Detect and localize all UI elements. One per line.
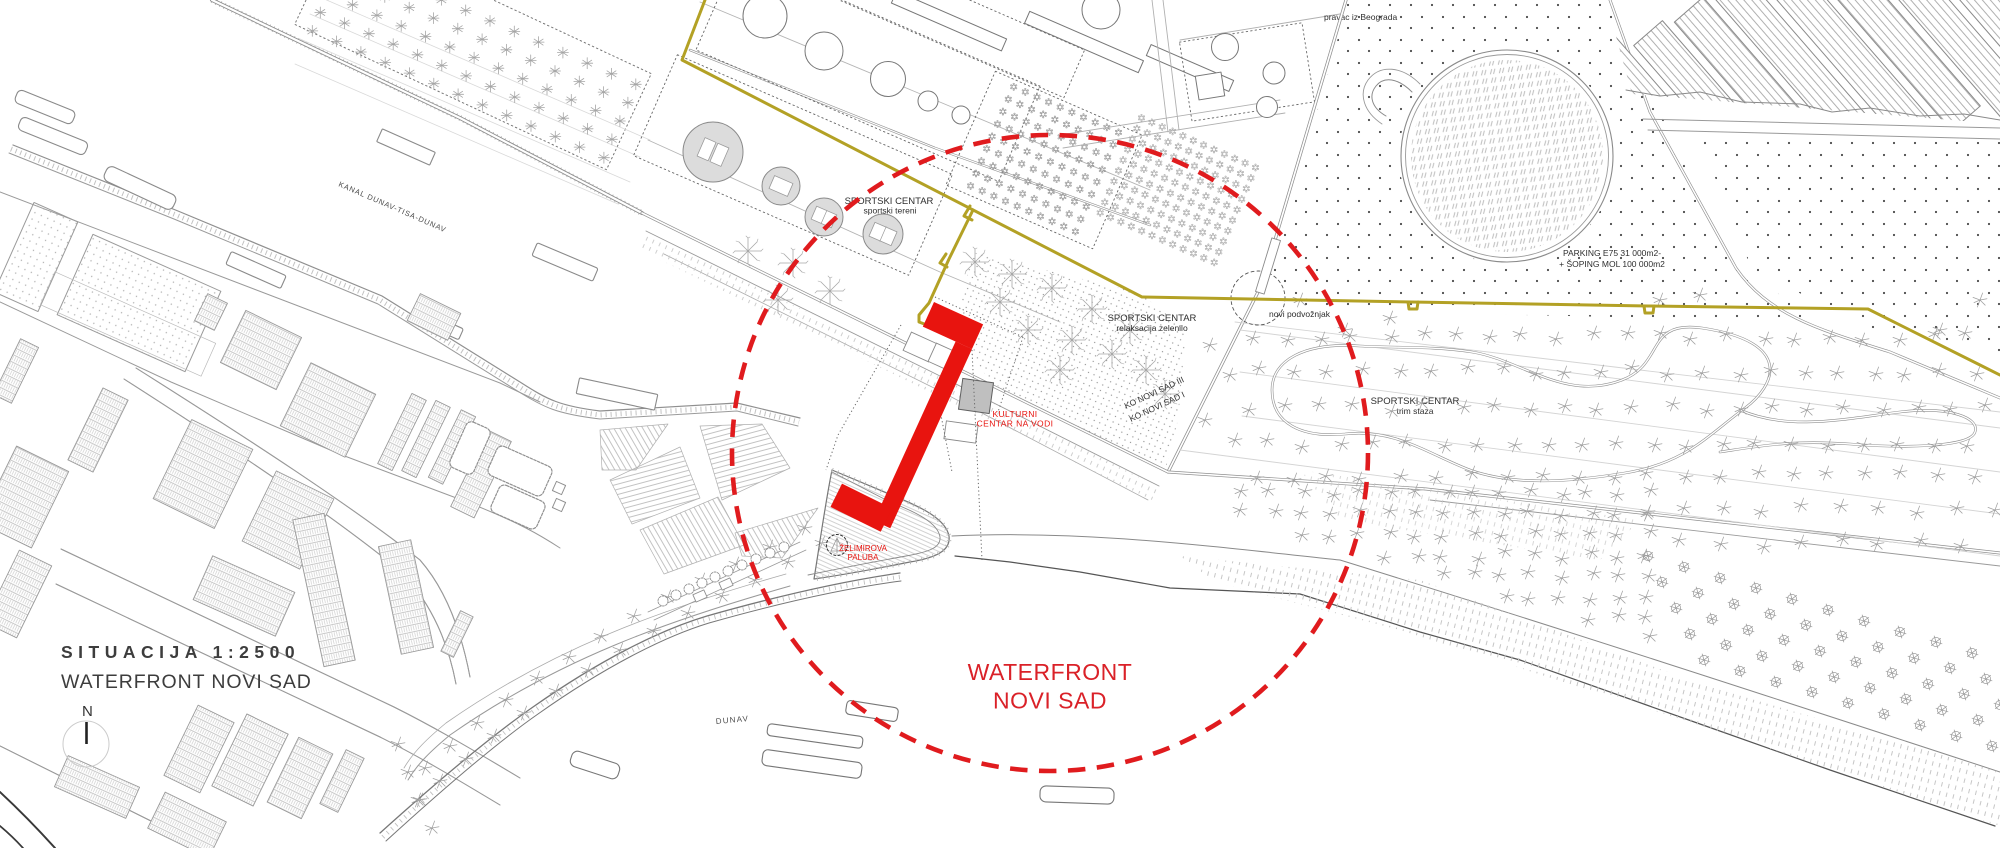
- svg-text:WATERFRONT NOVI SAD: WATERFRONT NOVI SAD: [61, 671, 312, 693]
- svg-text:sportski tereni: sportski tereni: [864, 206, 917, 216]
- svg-text:novi podvožnjak: novi podvožnjak: [1269, 309, 1331, 319]
- svg-text:NOVI SAD: NOVI SAD: [993, 688, 1107, 714]
- svg-text:trim staza: trim staza: [1397, 406, 1434, 416]
- svg-text:relaksacija zelenilo: relaksacija zelenilo: [1116, 323, 1188, 333]
- svg-text:CENTAR NA VODI: CENTAR NA VODI: [977, 419, 1054, 429]
- svg-text:SITUACIJA 1:2500: SITUACIJA 1:2500: [61, 642, 300, 662]
- svg-text:PARKING E75 31 000m2-: PARKING E75 31 000m2-: [1563, 248, 1661, 258]
- svg-text:pravac iz Beograda: pravac iz Beograda: [1324, 12, 1398, 22]
- svg-text:N: N: [82, 703, 93, 720]
- svg-text:KULTURNI: KULTURNI: [992, 409, 1037, 419]
- svg-text:ŽELIMIROVA: ŽELIMIROVA: [839, 544, 888, 553]
- svg-text:PALUBA: PALUBA: [848, 553, 880, 562]
- svg-text:WATERFRONT: WATERFRONT: [968, 659, 1133, 685]
- svg-text:+ ŠOPING MOL 100 000m2: + ŠOPING MOL 100 000m2: [1559, 259, 1665, 269]
